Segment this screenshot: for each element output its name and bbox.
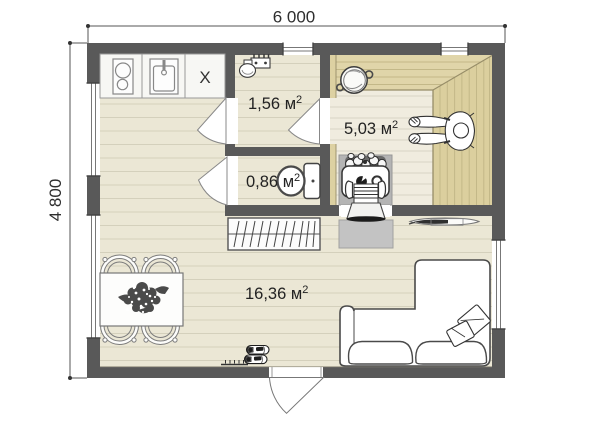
- svg-text:X: X: [199, 68, 210, 87]
- svg-text:4 800: 4 800: [46, 179, 65, 222]
- svg-text:6 000: 6 000: [273, 8, 316, 27]
- svg-text:5,03 м2: 5,03 м2: [344, 119, 398, 138]
- svg-text:1,56 м2: 1,56 м2: [248, 94, 302, 113]
- svg-text:16,36 м2: 16,36 м2: [245, 284, 308, 303]
- svg-text:0,86 м2: 0,86 м2: [246, 172, 300, 191]
